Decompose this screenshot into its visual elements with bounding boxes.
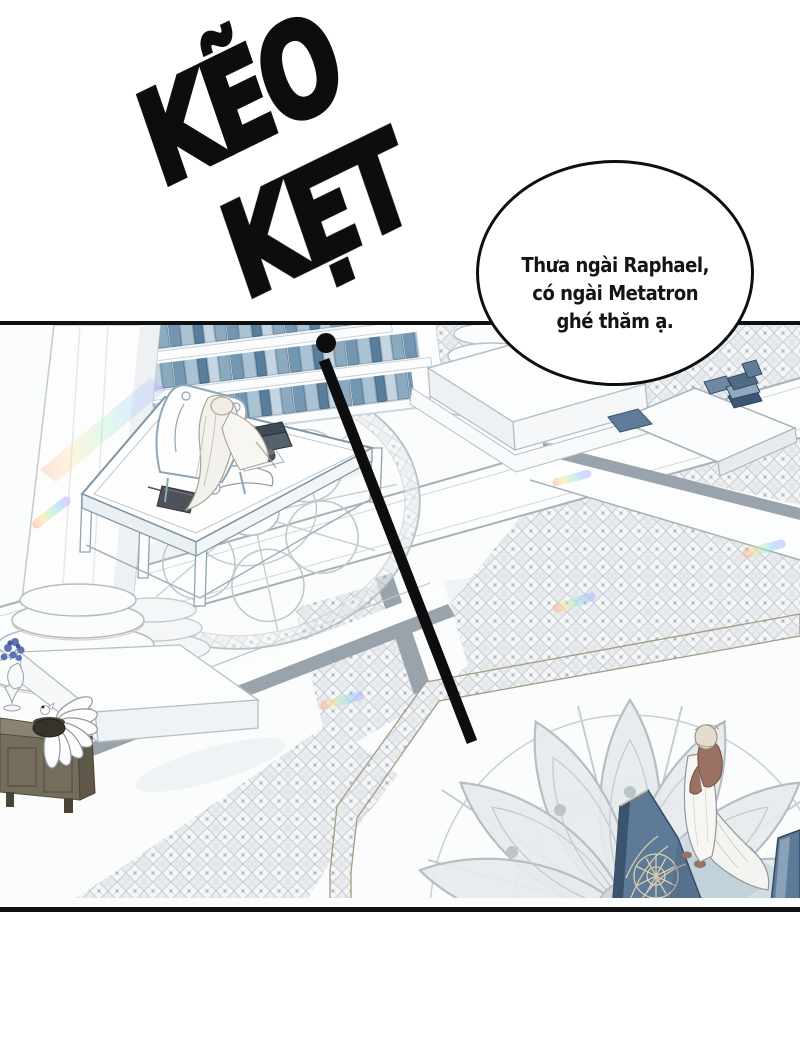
comic-panel	[0, 321, 800, 912]
speech-line: Thưa ngài Raphael,	[521, 251, 709, 279]
head	[695, 725, 717, 749]
sfx-dot	[316, 333, 336, 353]
comic-page: KẼO KẸT	[0, 0, 800, 1044]
speech-line: ghé thăm ạ.	[557, 307, 674, 335]
library-scene	[0, 325, 800, 898]
speech-bubble: Thưa ngài Raphael, có ngài Metatron ghé …	[476, 160, 754, 386]
speech-line: có ngài Metatron	[532, 279, 698, 307]
